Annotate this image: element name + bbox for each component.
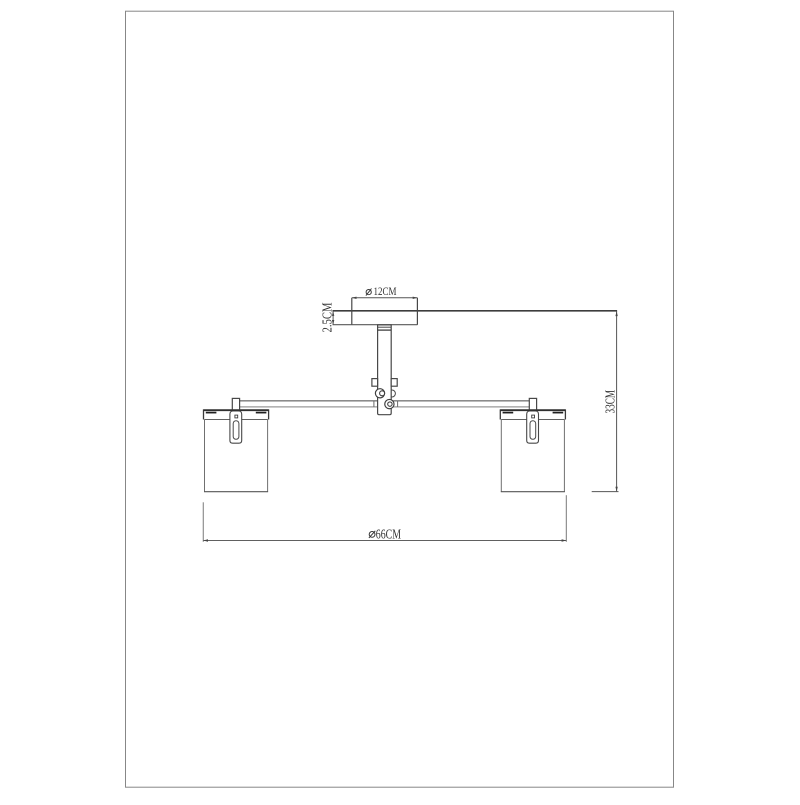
svg-text:33CM: 33CM	[603, 390, 618, 414]
svg-text:66CM: 66CM	[376, 527, 402, 542]
svg-text:12CM: 12CM	[374, 284, 397, 298]
svg-text:2.5CM: 2.5CM	[320, 302, 335, 332]
